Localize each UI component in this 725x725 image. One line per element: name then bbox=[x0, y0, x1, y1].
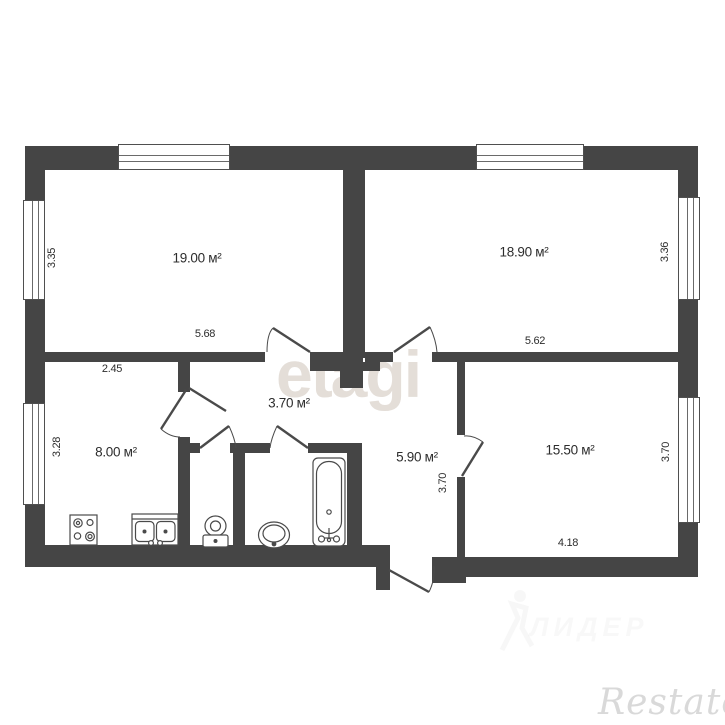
window-left-upper bbox=[23, 200, 45, 300]
wall bbox=[190, 443, 200, 453]
wall bbox=[25, 146, 118, 170]
faint-watermark: ЛИДЕР bbox=[530, 612, 649, 643]
wall bbox=[457, 477, 465, 577]
door-bathroom bbox=[270, 426, 308, 448]
wall bbox=[25, 170, 45, 200]
hallway-inner-area-label: 3.70 м² bbox=[268, 396, 310, 411]
wall bbox=[178, 437, 190, 545]
wall bbox=[310, 352, 343, 362]
wall bbox=[178, 360, 190, 392]
hallway-entry-area-label: 5.90 м² bbox=[396, 450, 438, 465]
door-room-15-5 bbox=[462, 436, 483, 476]
wall bbox=[230, 443, 270, 453]
dim-room-19-side: 3.35 bbox=[46, 248, 58, 268]
dim-hallway-entry-side: 3.70 bbox=[437, 473, 449, 493]
wall bbox=[457, 362, 465, 435]
wall bbox=[432, 352, 678, 362]
wall bbox=[233, 453, 245, 545]
kitchen-area-label: 8.00 м² bbox=[95, 445, 137, 460]
window-left-lower bbox=[23, 403, 45, 505]
wall bbox=[678, 170, 698, 197]
room-18-9-area-label: 18.90 м² bbox=[500, 245, 549, 260]
wall bbox=[678, 300, 698, 397]
floor-plan: etagi ЛИДЕР Restate bbox=[0, 0, 725, 725]
wall bbox=[584, 146, 698, 170]
restate-watermark: Restate bbox=[598, 682, 725, 723]
stove-icon bbox=[70, 515, 97, 545]
dim-room-19-width: 5.68 bbox=[195, 328, 215, 340]
wall bbox=[25, 300, 45, 403]
toilet-icon bbox=[203, 516, 228, 547]
wall bbox=[343, 170, 365, 358]
wall bbox=[230, 146, 476, 170]
window-top-left bbox=[118, 144, 230, 170]
wall bbox=[365, 352, 393, 362]
wall bbox=[340, 352, 363, 388]
dim-room-15-5-width: 4.18 bbox=[558, 537, 578, 549]
room-19-area-label: 19.00 м² bbox=[173, 251, 222, 266]
bathtub-icon bbox=[313, 458, 345, 546]
window-right-lower bbox=[678, 397, 700, 523]
wall bbox=[457, 557, 698, 577]
wall bbox=[376, 567, 390, 590]
wall bbox=[347, 443, 362, 545]
kitchen-sink-icon bbox=[132, 514, 178, 545]
dim-kitchen-side: 3.28 bbox=[51, 437, 63, 457]
room-15-5-area-label: 15.50 м² bbox=[546, 443, 595, 458]
dim-room-15-5-side: 3.70 bbox=[660, 442, 672, 462]
dim-kitchen-width: 2.45 bbox=[102, 363, 122, 375]
wall bbox=[308, 443, 347, 453]
window-right-upper bbox=[678, 197, 700, 300]
dim-room-18-9-side: 3.36 bbox=[659, 242, 671, 262]
door-kitchen bbox=[161, 388, 226, 437]
wall bbox=[45, 352, 265, 362]
entrance-door bbox=[389, 566, 434, 592]
wall bbox=[25, 545, 390, 567]
window-top-right bbox=[476, 144, 584, 170]
dim-room-18-9-width: 5.62 bbox=[525, 335, 545, 347]
